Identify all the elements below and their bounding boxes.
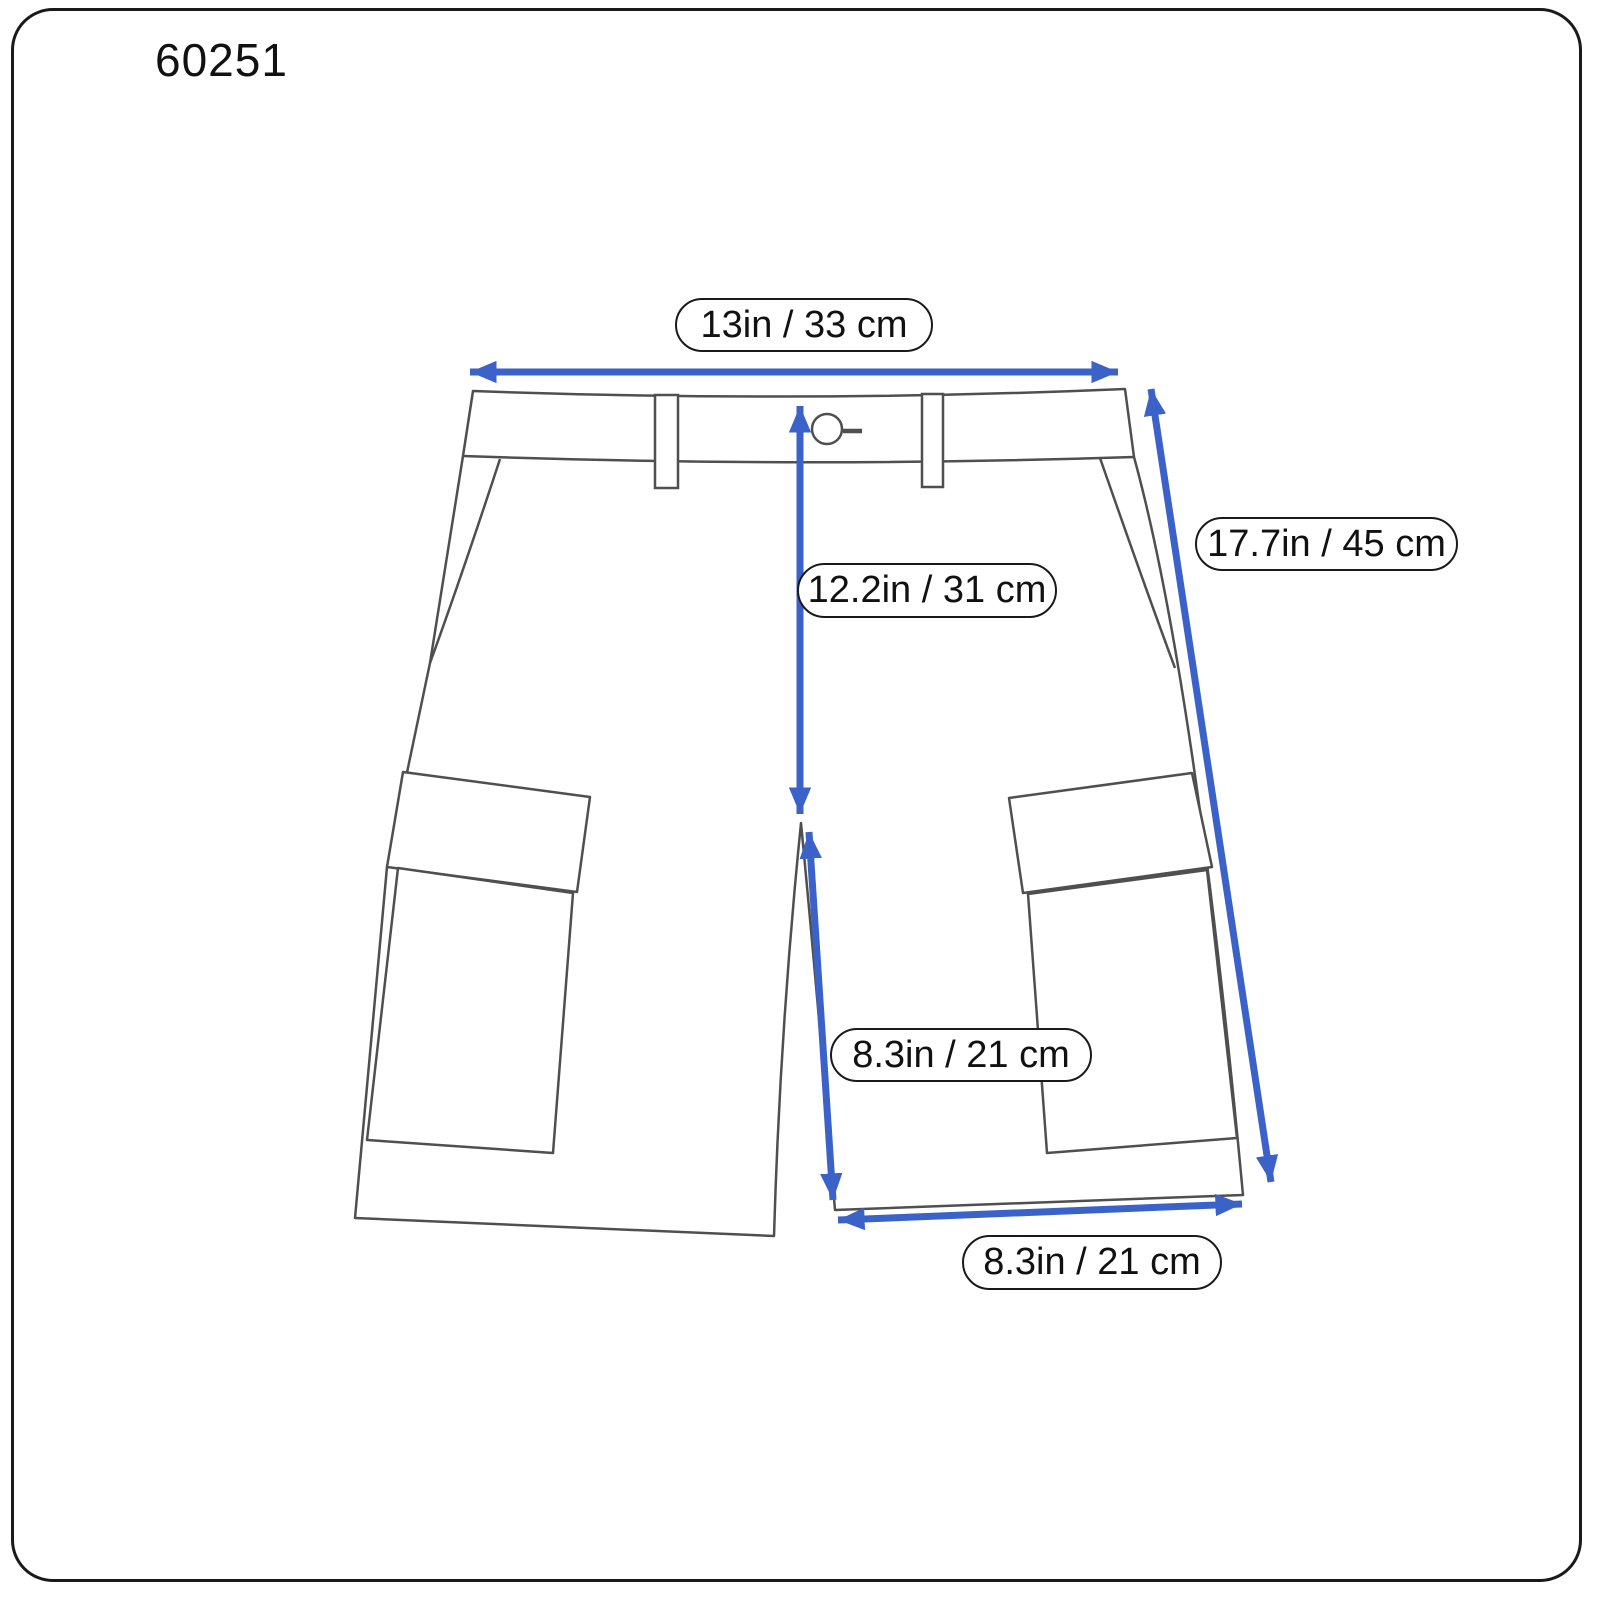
right-cargo-pocket <box>1028 870 1237 1153</box>
side-length-measurement-label: 17.7in / 45 cm <box>1195 517 1458 571</box>
inseam-measurement-label: 8.3in / 21 cm <box>830 1028 1092 1082</box>
hem-opening-measurement-label: 8.3in / 21 cm <box>962 1235 1222 1290</box>
waist-measurement-label: 13in / 33 cm <box>675 298 933 352</box>
left-cargo-pocket <box>367 868 573 1153</box>
belt-loop-right <box>922 394 943 487</box>
waist-button <box>812 414 842 444</box>
shorts-line-drawing <box>0 0 1600 1600</box>
size-chart-canvas: 60251 13in / 33 cm <box>0 0 1600 1600</box>
front-rise-measurement-label: 12.2in / 31 cm <box>797 563 1057 618</box>
belt-loop-left <box>655 395 678 488</box>
